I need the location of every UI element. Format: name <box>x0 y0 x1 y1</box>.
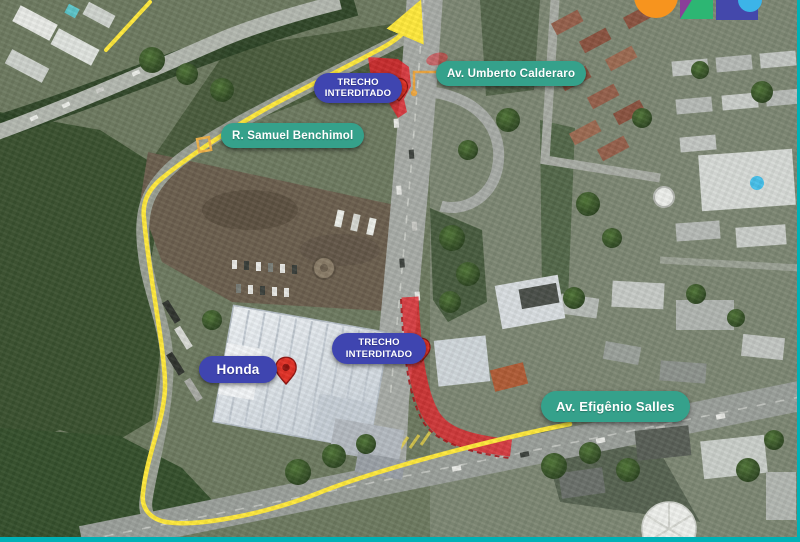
logo-orange-circle-icon <box>634 0 678 18</box>
street-label-efigenio-salles: Av. Efigênio Salles <box>541 391 690 422</box>
logo-green-square-icon <box>680 0 713 19</box>
poi-label-text: Honda <box>217 362 260 377</box>
street-label-text: Av. Umberto Calderaro <box>447 68 575 80</box>
closure-badge-line1: TRECHO <box>337 77 378 88</box>
closure-badge-top: TRECHO INTERDITADO <box>314 73 402 103</box>
street-label-text: R. Samuel Benchimol <box>232 130 353 142</box>
closure-badge-line2: INTERDITADO <box>325 88 391 99</box>
street-label-umberto-calderaro: Av. Umberto Calderaro <box>436 61 586 86</box>
swimming-pool <box>750 176 764 190</box>
closure-badge-mid: TRECHO INTERDITADO <box>332 333 426 364</box>
road-closure-map: Av. Umberto Calderaro R. Samuel Benchimo… <box>0 0 800 542</box>
government-logo <box>630 0 770 26</box>
poi-label-honda: Honda <box>199 356 277 383</box>
street-label-text: Av. Efigênio Salles <box>556 399 675 414</box>
logo-purple-triangle-icon <box>680 0 713 19</box>
round-tower <box>654 187 674 207</box>
closure-badge-line1: TRECHO <box>358 337 399 348</box>
street-label-samuel-benchimol: R. Samuel Benchimol <box>221 123 364 148</box>
bottom-frame-bar <box>0 537 800 542</box>
closure-badge-line2: INTERDITADO <box>346 349 412 360</box>
